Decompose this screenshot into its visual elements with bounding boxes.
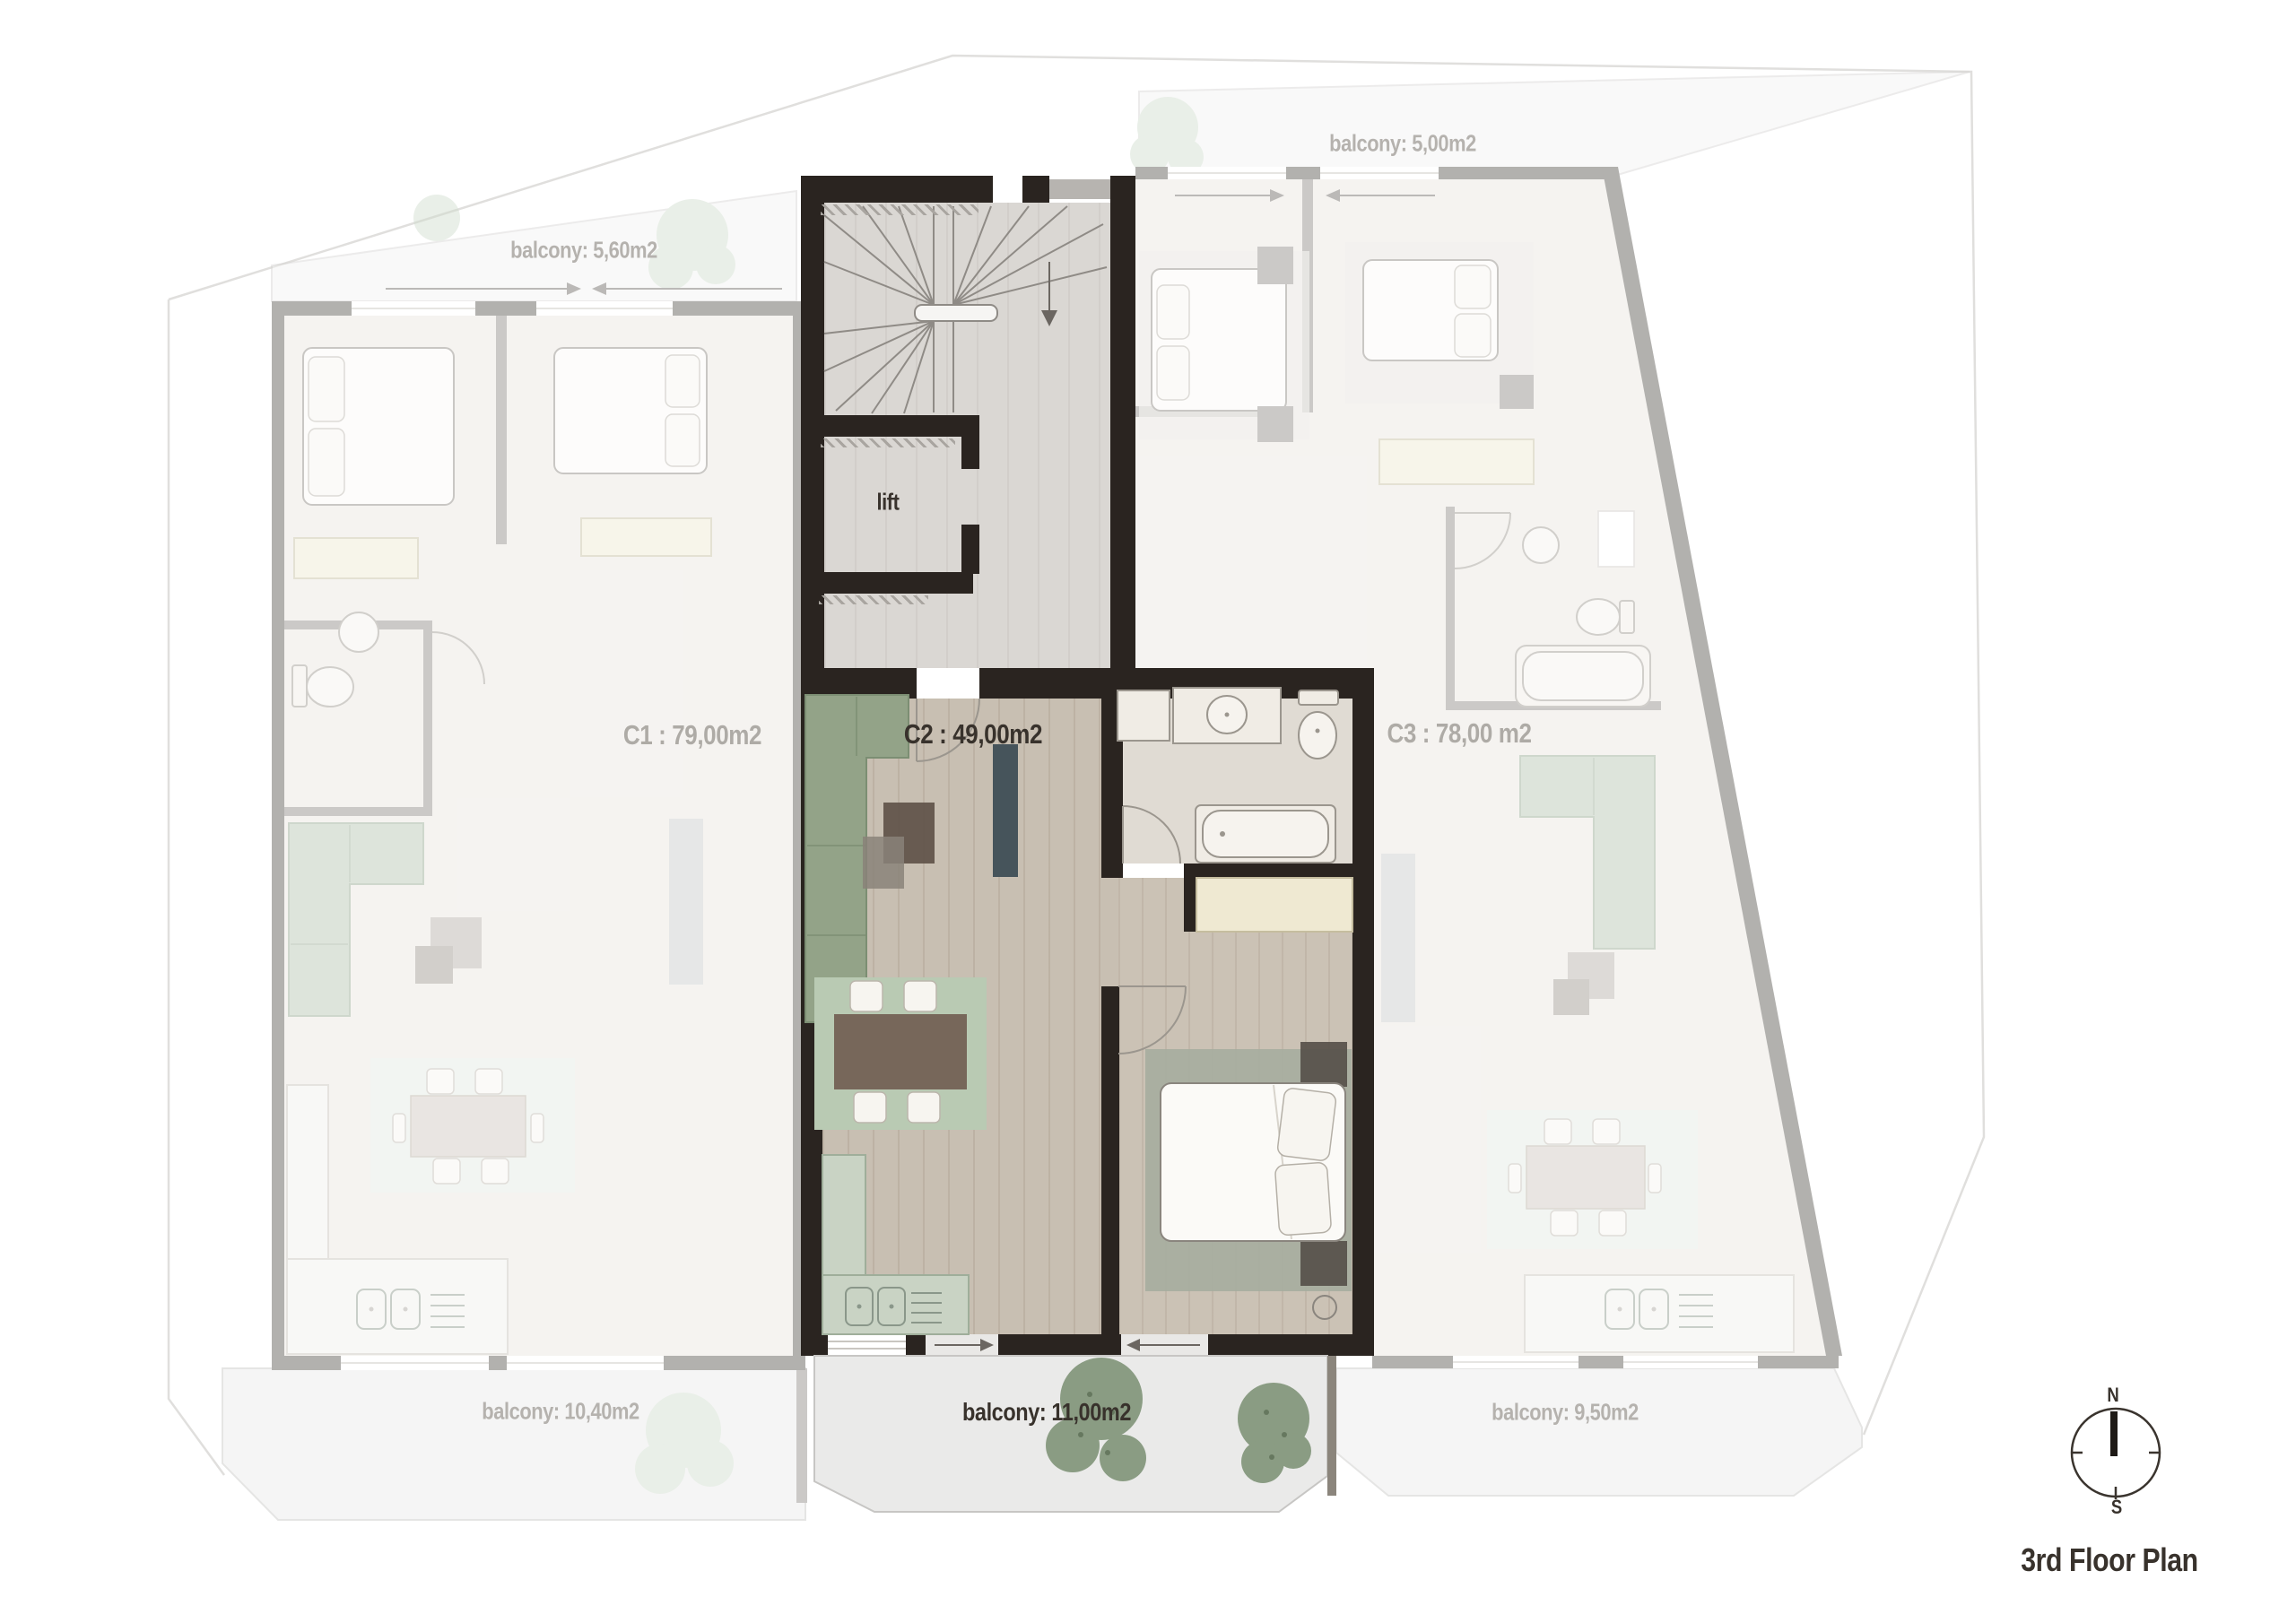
compass-south-label: S bbox=[2111, 1496, 2122, 1519]
compass-icon bbox=[2072, 1409, 2160, 1499]
lift-label: lift bbox=[876, 489, 899, 516]
kitchen-counter-icon bbox=[822, 1155, 969, 1334]
plan-drawing bbox=[0, 0, 2296, 1623]
balcony-bottom-center-label: balcony: 11,00m2 bbox=[962, 1398, 1131, 1427]
balcony-top-left-label: balcony: 5,60m2 bbox=[510, 237, 657, 265]
unit-c2-label: C2 : 49,00m2 bbox=[904, 718, 1042, 751]
stair-hatch-top bbox=[821, 204, 978, 215]
toilet-icon bbox=[1299, 690, 1338, 759]
bed-icon bbox=[1161, 1083, 1345, 1241]
compass-north-label: N bbox=[2107, 1384, 2118, 1407]
toilet-icon bbox=[292, 665, 353, 707]
sink-icon bbox=[1523, 527, 1559, 563]
page-title: 3rd Floor Plan bbox=[2021, 1541, 2197, 1579]
dining-table-icon bbox=[1526, 1146, 1645, 1209]
toilet-icon bbox=[1577, 599, 1634, 635]
wardrobe-icon bbox=[1196, 878, 1352, 932]
balcony-bottom-center bbox=[814, 1356, 1336, 1512]
kitchen-counter-icon bbox=[1525, 1275, 1794, 1352]
balcony-bottom-left-label: balcony: 10,40m2 bbox=[482, 1398, 639, 1426]
lift-hatch-top bbox=[821, 438, 955, 447]
tv-unit-icon bbox=[993, 744, 1018, 877]
nightstand-icon bbox=[1300, 1241, 1347, 1286]
dining-table-icon bbox=[834, 1014, 967, 1089]
unit-c1-label: C1 : 79,00m2 bbox=[623, 719, 761, 751]
sink-icon bbox=[339, 612, 378, 652]
balcony-top-right bbox=[1130, 72, 1970, 176]
balcony-bottom-right bbox=[1336, 1368, 1862, 1496]
bathtub-icon bbox=[1196, 805, 1335, 863]
bathtub-icon bbox=[1516, 646, 1650, 707]
bathroom-fixtures bbox=[1118, 688, 1338, 864]
stairs-icon bbox=[824, 206, 1107, 413]
nightstand-icon bbox=[1300, 1042, 1347, 1087]
shower-icon bbox=[1118, 690, 1170, 741]
cabinet-icon bbox=[669, 819, 703, 985]
lift-hatch-bottom bbox=[819, 595, 928, 604]
balcony-bottom-left bbox=[222, 1368, 807, 1520]
floor-plan: balcony: 5,60m2 balcony: 5,00m2 C1 : 79,… bbox=[0, 0, 2296, 1623]
unit-c1 bbox=[272, 282, 805, 1370]
dining-table-icon bbox=[411, 1096, 526, 1157]
unit-c2 bbox=[801, 668, 1374, 1356]
unit-c3-label: C3 : 78,00 m2 bbox=[1387, 717, 1531, 750]
balcony-top-right-label: balcony: 5,00m2 bbox=[1329, 130, 1476, 158]
balcony-bottom-right-label: balcony: 9,50m2 bbox=[1492, 1399, 1639, 1427]
